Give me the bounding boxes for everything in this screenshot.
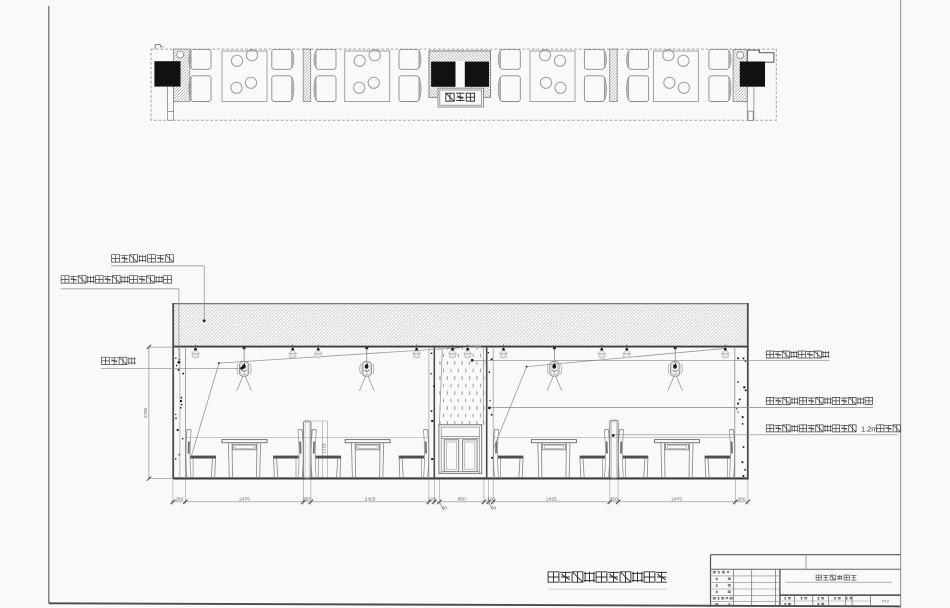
svg-text:2700: 2700 <box>143 407 148 418</box>
svg-text:80: 80 <box>442 506 448 512</box>
svg-text:80: 80 <box>491 506 497 512</box>
svg-text:2475: 2475 <box>239 496 250 502</box>
svg-text:P10: P10 <box>882 599 890 604</box>
svg-text:1218: 1218 <box>321 443 326 454</box>
svg-text:1.2m: 1.2m <box>861 425 877 434</box>
svg-text:950: 950 <box>458 496 466 502</box>
svg-text:350: 350 <box>303 496 311 502</box>
svg-text:2475: 2475 <box>671 496 682 502</box>
svg-text:2425: 2425 <box>365 496 376 502</box>
svg-text:350: 350 <box>610 496 618 502</box>
svg-text:260: 260 <box>175 496 183 502</box>
svg-text:260: 260 <box>738 496 746 502</box>
svg-text:2425: 2425 <box>546 496 557 502</box>
svg-text:120: 120 <box>428 496 436 502</box>
svg-text:120: 120 <box>487 496 495 502</box>
